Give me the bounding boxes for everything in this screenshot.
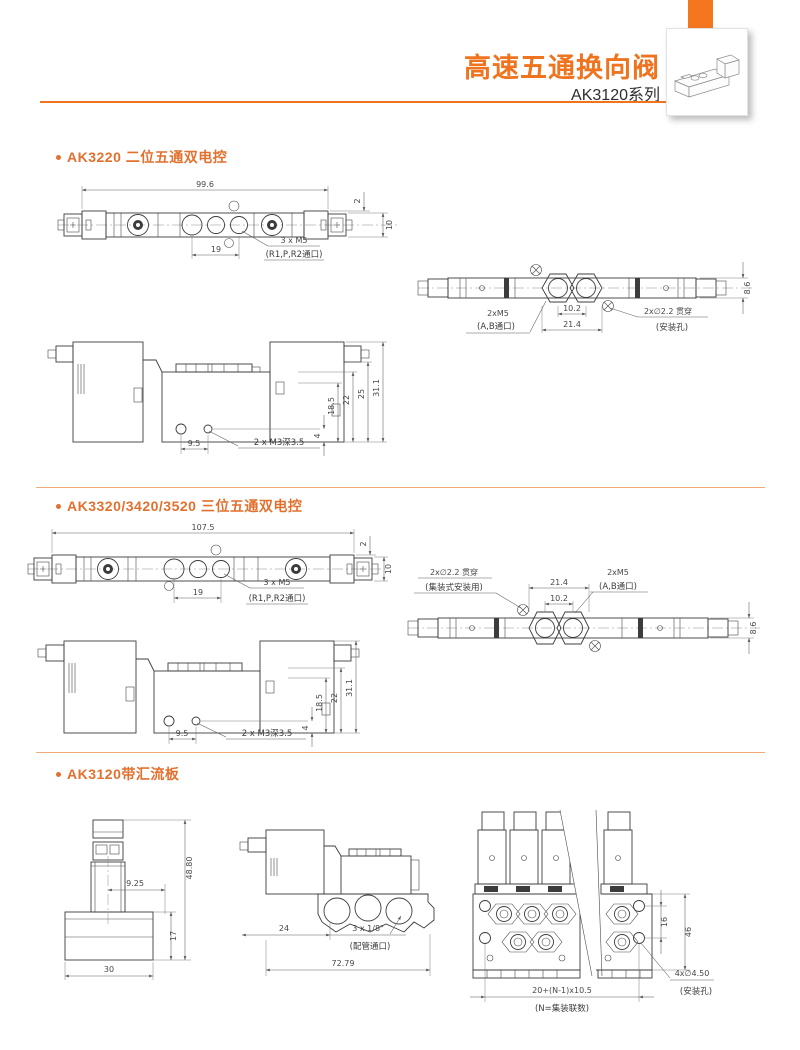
ak3120-side-view-drawing: 24 3 x 1/8" (配管通口) 72.79: [238, 818, 453, 998]
dim-port-span: 21.4: [550, 578, 568, 587]
section3-title: AK3120带汇流板: [56, 764, 179, 784]
valve-outline: [38, 641, 359, 733]
ports-label: 3 x 1/8": [352, 924, 383, 933]
dim-height-3: 25: [357, 389, 366, 399]
ports-label: 3 x M5: [264, 578, 291, 587]
ak3320-bottom-view-drawing: 21.4 10.2 2x∅2.2 贯穿 (集装式安装用) 2xM5 (A,B通口…: [408, 560, 760, 672]
header-rule: [40, 101, 666, 103]
ak3220-top-view-drawing: 99.6 19 3 x M5 (R1,P,R2通口) 2 10: [58, 178, 403, 270]
dim-hole-pitch: 9.5: [188, 439, 201, 448]
dim-hole-offset: 4: [313, 433, 322, 438]
tap-label: 2 x M3深3.5: [242, 729, 293, 739]
dimensions: 107.5 19 3 x M5 (R1,P,R2通口) 2 10: [52, 523, 393, 604]
dimensions: 48.80 9.25 17 30: [65, 820, 194, 980]
dim-port-span: 21.4: [563, 320, 581, 329]
ak3120-end-view-drawing: 48.80 9.25 17 30: [55, 806, 215, 988]
dim-body-height: 8.6: [743, 282, 752, 295]
valve-outline: [48, 342, 369, 442]
dim-edge-offset: 2: [359, 541, 368, 546]
ports-note: (R1,P,R2通口): [249, 593, 306, 604]
mount-label: 4x∅4.50: [675, 969, 710, 978]
dim-height-1: 18.5: [327, 397, 336, 415]
dim-body-height: 10: [384, 564, 393, 574]
dimensions: 9.5 2 x M3深3.5 4 18.5 22 25 31.1: [181, 342, 387, 456]
mount-note: (安装孔): [680, 986, 712, 997]
formula-note: (N=集装联数): [535, 1003, 589, 1014]
dim-hole-offset: 4: [301, 725, 310, 730]
ports-note: (配管通口): [350, 941, 391, 952]
bullet-icon: [56, 772, 61, 777]
dim-height-4: 31.1: [372, 379, 381, 397]
thread-label: 2xM5: [607, 568, 629, 577]
dim-height-3: 31.1: [345, 679, 354, 697]
dim-base-height: 17: [169, 931, 178, 941]
ak3220-side-view-drawing: 9.5 2 x M3深3.5 4 18.5 22 25 31.1: [48, 330, 393, 460]
dim-base-width: 30: [104, 965, 114, 974]
ak3220-bottom-view-drawing: 10.2 21.4 2xM5 (A,B通口) 2x∅2.2 贯穿 (安装孔) 8…: [418, 254, 753, 356]
hole-label: 2x∅2.2 贯穿: [644, 306, 692, 316]
dim-port-pitch: 19: [193, 588, 203, 597]
dim-length-formula: 20+(N-1)x10.5: [532, 986, 592, 995]
section-divider: [36, 487, 765, 488]
dim-overall-length: 72.79: [332, 959, 355, 968]
dim-overall-width: 107.5: [192, 523, 215, 532]
section2-title: AK3320/3420/3520 三位五通双电控: [56, 496, 302, 516]
manifold-assembly-outline: [473, 810, 652, 978]
dim-height-2: 22: [342, 395, 351, 405]
tap-label: 2 x M3深3.5: [254, 438, 305, 448]
hole-note: (安装孔): [656, 322, 688, 333]
dim-overall-width: 99.6: [196, 180, 214, 189]
dim-edge-offset: 2: [353, 198, 362, 203]
valve-outline: [58, 201, 398, 248]
dimensions: 21.4 10.2 2x∅2.2 贯穿 (集装式安装用) 2xM5 (A,B通口…: [414, 567, 758, 654]
valve-outline: [240, 830, 434, 932]
dim-hole-pitch: 16: [660, 917, 669, 927]
valve-outline: [408, 605, 760, 652]
thread-note: (A,B通口): [599, 581, 637, 592]
section1-title: AK3220 二位五通双电控: [56, 147, 227, 167]
ak3320-side-view-drawing: 9.5 2 x M3深3.5 4 18.5 22 31.1: [38, 633, 388, 751]
ak3320-top-view-drawing: 107.5 19 3 x M5 (R1,P,R2通口) 2 10: [28, 523, 393, 620]
dim-overall-height: 46: [684, 927, 693, 937]
valve-isometric-icon: [667, 29, 747, 113]
dim-height-2: 22: [330, 693, 339, 703]
ports-note: (R1,P,R2通口): [266, 249, 323, 260]
dim-left-offset: 24: [279, 924, 289, 933]
thread-note: (A,B通口): [477, 321, 515, 332]
dim-port-pitch: 10.2: [563, 304, 581, 313]
bullet-icon: [56, 504, 61, 509]
valve-outline: [28, 545, 386, 591]
thread-label: 2xM5: [487, 309, 509, 318]
valve-outline: [418, 265, 753, 312]
dim-center-offset: 9.25: [126, 879, 144, 888]
dim-port-pitch: 19: [211, 245, 221, 254]
dim-overall-height: 48.80: [185, 857, 194, 880]
dim-height-1: 18.5: [315, 694, 324, 712]
dim-body-height: 8.6: [749, 622, 758, 635]
hole-note: (集装式安装用): [425, 582, 483, 593]
dimensions: 24 3 x 1/8" (配管通口) 72.79: [242, 916, 430, 976]
dim-body-height: 10: [385, 220, 394, 230]
dim-hole-pitch: 9.5: [176, 729, 189, 738]
ports-label: 3 x M5: [281, 236, 308, 245]
product-thumbnail: [666, 28, 748, 116]
page-title: 高速五通换向阀: [250, 46, 660, 85]
ak3120-manifold-front-view-drawing: 16 46 20+(N-1)x10.5 (N=集装联数) 4x∅4.50 (安装…: [462, 810, 747, 1018]
dimensions: 9.5 2 x M3深3.5 4 18.5 22 31.1: [169, 641, 360, 747]
dim-port-pitch: 10.2: [550, 594, 568, 603]
section-divider: [36, 752, 765, 753]
hole-label: 2x∅2.2 贯穿: [430, 567, 478, 577]
page-corner-tab: [688, 0, 713, 30]
bullet-icon: [56, 155, 61, 160]
